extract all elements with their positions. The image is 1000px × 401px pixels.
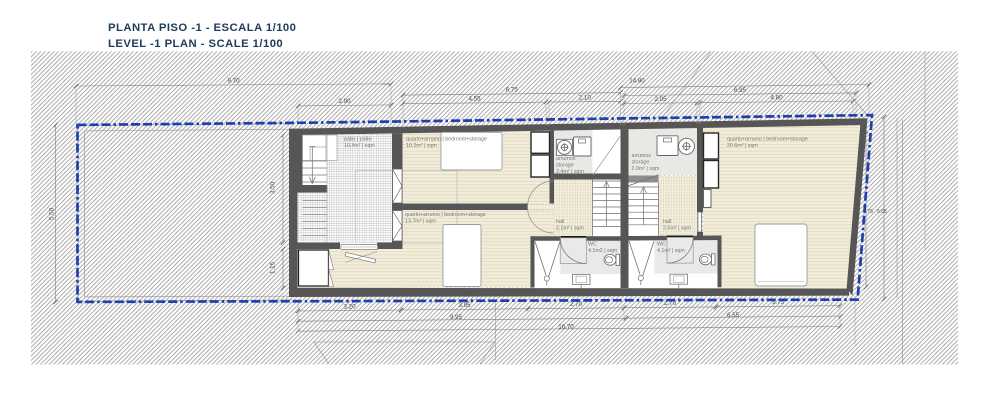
svg-text:5.50: 5.50 — [49, 207, 56, 220]
svg-text:10.4m² | sqm: 10.4m² | sqm — [344, 143, 375, 149]
svg-text:pátio | patio: pátio | patio — [344, 137, 371, 143]
svg-text:5.65: 5.65 — [877, 209, 887, 215]
svg-text:6.55: 6.55 — [727, 312, 740, 319]
svg-text:1.15: 1.15 — [270, 261, 277, 274]
svg-text:arrumos: arrumos — [556, 156, 576, 162]
svg-text:2.90: 2.90 — [338, 98, 351, 105]
svg-text:arrumos: arrumos — [632, 153, 652, 159]
svg-text:quarto+arrumo | bedroom+storag: quarto+arrumo | bedroom+storage — [727, 137, 808, 143]
svg-text:hall: hall — [663, 219, 671, 225]
svg-text:14.80: 14.80 — [629, 78, 645, 85]
svg-text:2.70: 2.70 — [570, 301, 583, 308]
svg-text:quarto+arrumo | bedroom+storag: quarto+arrumo | bedroom+storage — [406, 137, 487, 143]
svg-text:4.1m2 | sqm: 4.1m2 | sqm — [588, 248, 618, 254]
svg-text:6.95: 6.95 — [734, 87, 747, 94]
svg-text:20.6m² | sqm: 20.6m² | sqm — [727, 143, 758, 149]
svg-text:2.4m² | sqm: 2.4m² | sqm — [556, 169, 584, 175]
svg-text:9.95: 9.95 — [450, 314, 463, 321]
svg-text:4.1m² | sqm: 4.1m² | sqm — [657, 248, 685, 254]
svg-text:4.80: 4.80 — [770, 95, 783, 102]
svg-text:2.05: 2.05 — [654, 96, 667, 103]
svg-text:WC: WC — [657, 242, 666, 248]
svg-text:2.10: 2.10 — [579, 95, 592, 102]
svg-text:4.55: 4.55 — [468, 96, 481, 103]
svg-text:13.7m² | sqm: 13.7m² | sqm — [405, 219, 436, 225]
svg-text:3.50: 3.50 — [270, 181, 277, 194]
svg-text:storage: storage — [556, 163, 574, 169]
svg-text:9.70: 9.70 — [227, 78, 240, 85]
svg-text:6.75: 6.75 — [506, 87, 519, 94]
svg-text:16.70: 16.70 — [558, 323, 574, 330]
svg-text:2.1m² | sqm: 2.1m² | sqm — [556, 226, 584, 232]
svg-text:WC: WC — [588, 242, 597, 248]
svg-text:2.5m² | sqm: 2.5m² | sqm — [663, 226, 691, 232]
svg-text:10.2m² | sqm: 10.2m² | sqm — [406, 143, 437, 149]
svg-text:3.20: 3.20 — [343, 303, 356, 310]
svg-text:hall: hall — [556, 219, 564, 225]
svg-text:2.0m² | sqm: 2.0m² | sqm — [632, 166, 660, 172]
svg-text:storage: storage — [632, 160, 650, 166]
svg-text:quarto+arrumo | bedroom+storag: quarto+arrumo | bedroom+storage — [405, 212, 486, 218]
svg-text:3.95: 3.95 — [458, 302, 471, 309]
